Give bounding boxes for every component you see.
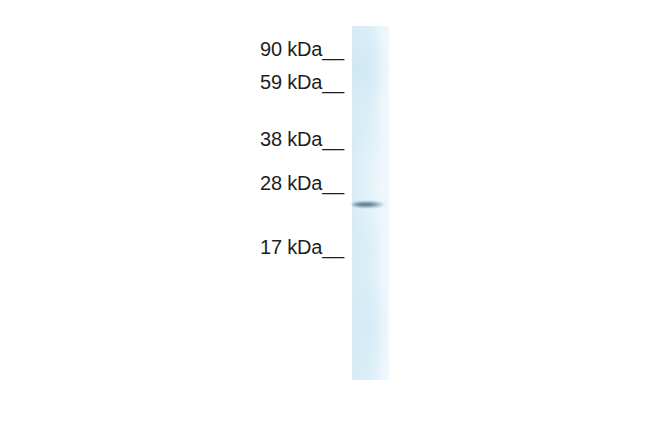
marker-label-90kda: 90 kDa__ bbox=[0, 39, 344, 59]
western-blot-figure: 90 kDa__ 59 kDa__ 38 kDa__ 28 kDa__ 17 k… bbox=[0, 0, 650, 433]
lane-edge-fringe bbox=[385, 26, 391, 380]
blot-lane bbox=[352, 26, 385, 380]
marker-label-59kda: 59 kDa__ bbox=[0, 72, 344, 92]
marker-label-28kda: 28 kDa__ bbox=[0, 173, 344, 193]
marker-label-17kda: 17 kDa__ bbox=[0, 237, 344, 257]
protein-band bbox=[351, 202, 386, 207]
marker-label-38kda: 38 kDa__ bbox=[0, 129, 344, 149]
